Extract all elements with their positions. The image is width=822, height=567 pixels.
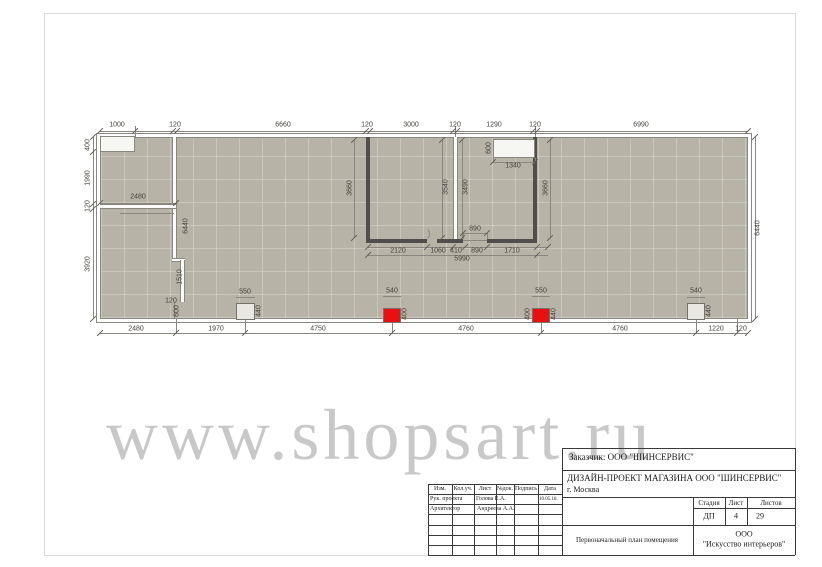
- row1-name: Голова Е.А.: [476, 496, 506, 502]
- company-line2: "Искусство интерьеров": [703, 540, 786, 549]
- row1-date: 10.05.18.: [539, 497, 558, 502]
- title-block: Заказчик: ООО "ШИНСЕРВИС" ДИЗАЙН-ПРОЕКТ …: [0, 0, 822, 567]
- col-list: Лист: [479, 486, 492, 492]
- row2-name: Андреева А.А.: [477, 506, 515, 512]
- sheet-header: Лист: [729, 499, 744, 507]
- col-podpis: Подпись: [515, 486, 537, 492]
- project-city: г. Москва: [567, 485, 599, 494]
- row2-role: Архитектор: [430, 506, 460, 512]
- stage-header: Стадия: [698, 499, 719, 507]
- sheet-value: 4: [734, 512, 738, 521]
- col-data: Дата: [544, 486, 556, 492]
- col-koluch: Кол.уч.: [454, 486, 473, 492]
- doc-name: Первоначальный план помещения: [576, 536, 678, 544]
- row1-role: Рук. проекта: [430, 496, 462, 502]
- company-line1: ООО: [735, 530, 752, 539]
- sheets-header: Листов: [760, 499, 781, 507]
- col-ndok: №док.: [497, 486, 513, 492]
- stage-value: ДП: [703, 512, 714, 521]
- customer-label: Заказчик: ООО "ШИНСЕРВИС": [569, 452, 694, 462]
- sheets-value: 29: [756, 512, 764, 521]
- col-izm: Изм.: [434, 486, 446, 492]
- project-title: ДИЗАЙН-ПРОЕКТ МАГАЗИНА ООО "ШИНСЕРВИС": [567, 473, 781, 483]
